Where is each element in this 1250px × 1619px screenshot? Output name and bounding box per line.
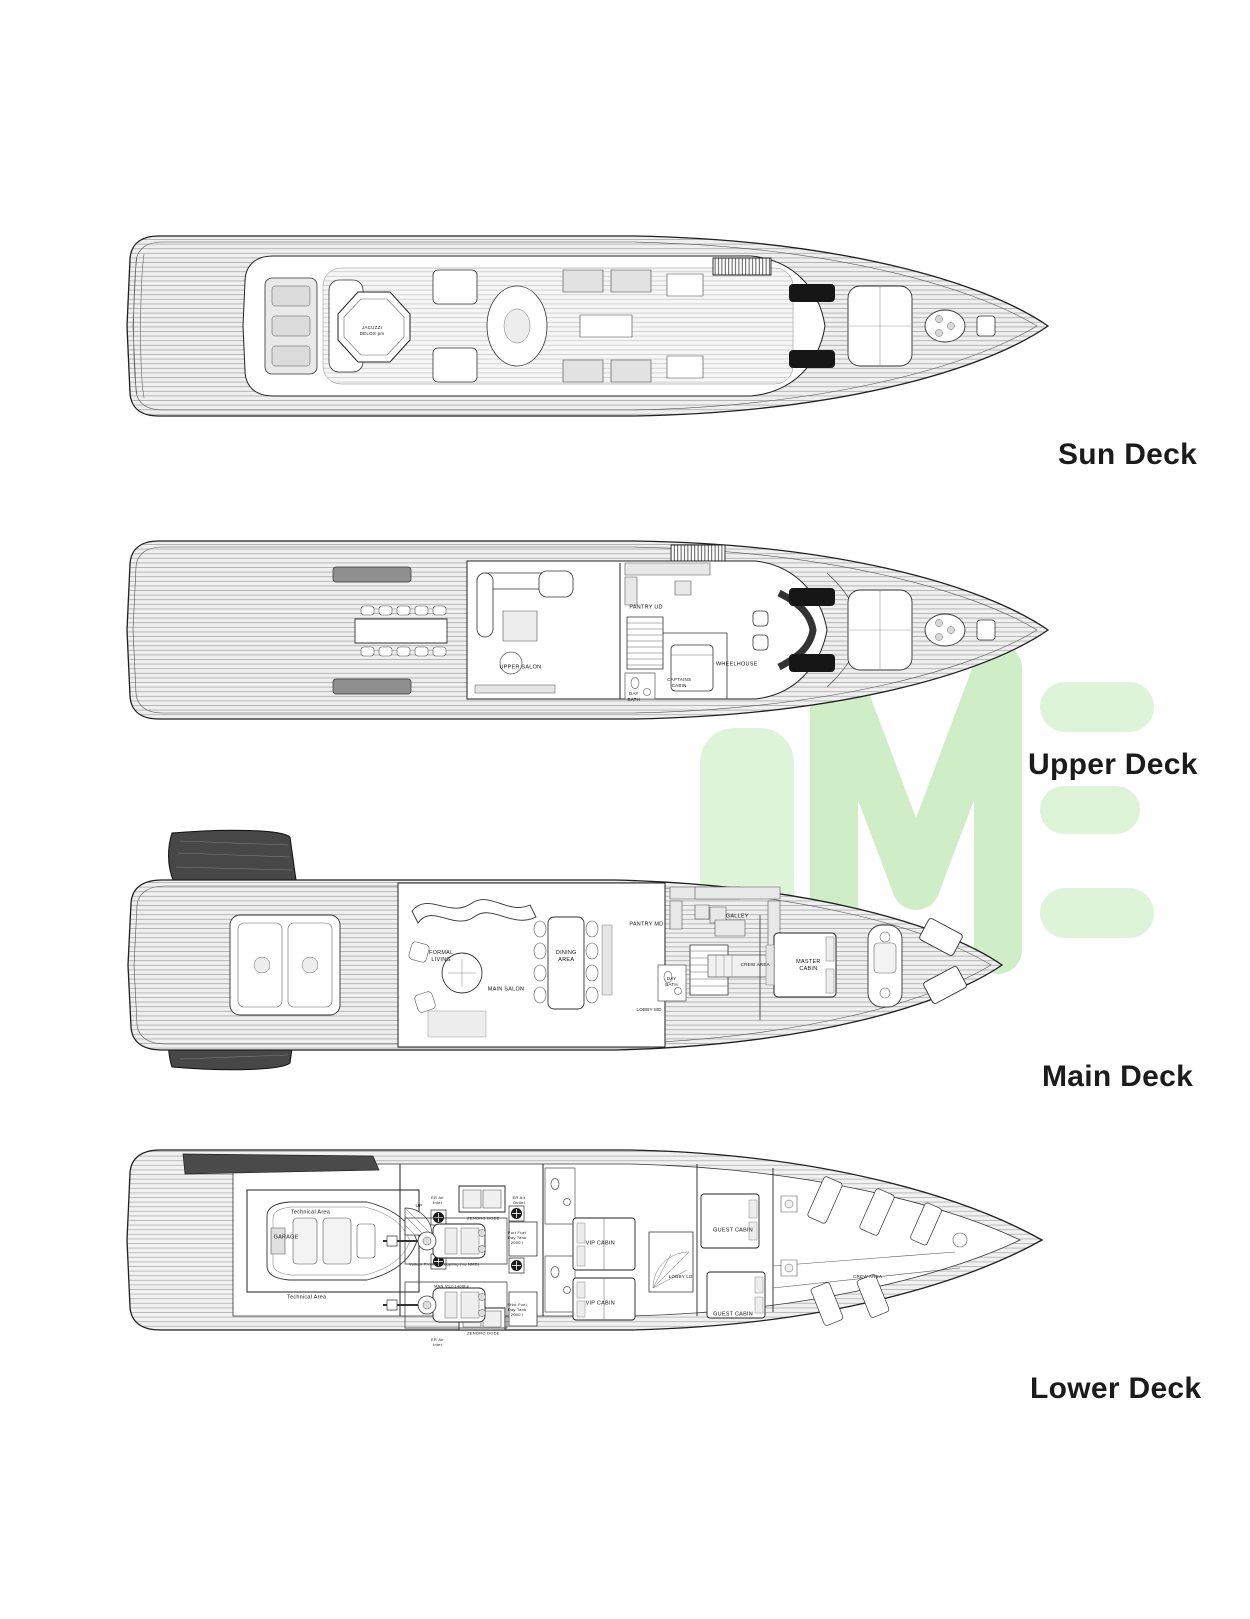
room-label: PANTRY UD xyxy=(629,604,662,611)
room-label: GALLEY xyxy=(726,913,749,920)
page: JACUZZI DELOS pm Sun Deck xyxy=(0,0,1250,1619)
room-label: MASTER CABIN xyxy=(796,959,820,973)
room-label: Vulkan Propflex coupling (no NMD) xyxy=(409,1261,480,1266)
deck-sun: JACUZZI DELOS pm xyxy=(115,228,1060,425)
room-label: GUEST CABIN xyxy=(713,1311,753,1318)
room-label: ER Air Inlet xyxy=(431,1337,444,1347)
room-label: Technical Area xyxy=(287,1294,326,1301)
room-label: WHEELHOUSE xyxy=(716,661,758,668)
room-label: GUEST CABIN xyxy=(713,1227,753,1234)
room-label: UPPER SALON xyxy=(499,664,541,671)
room-label: DAY BATH xyxy=(627,691,640,703)
room-label: MAN V12-1400hp xyxy=(434,1283,469,1288)
deck-lower: Technical AreaGARAGETechnical AreaUPER A… xyxy=(115,1140,1050,1340)
room-label: VIP CABIN xyxy=(586,1300,615,1307)
deck-main: FORMAL LIVINGMAIN SALONDINING AREAPANTRY… xyxy=(110,825,1010,1075)
room-label: GARAGE xyxy=(274,1234,299,1241)
room-label: ZENORO DODE xyxy=(467,1330,500,1335)
deck-title-upper: Upper Deck xyxy=(1028,748,1198,782)
room-label: PANTRY MD xyxy=(629,921,663,928)
room-label: DAY BATH xyxy=(665,976,678,988)
room-label: DINING AREA xyxy=(556,950,577,964)
deck-title-lower: Lower Deck xyxy=(1030,1372,1201,1406)
room-label: CREW AREA xyxy=(853,1274,882,1280)
room-label: ZENORO DODE xyxy=(467,1215,500,1220)
room-label: FORMAL LIVING xyxy=(429,950,453,964)
room-label: CREW AREA xyxy=(741,962,770,968)
room-label: UP xyxy=(415,1203,422,1209)
room-label: LOBBY MD xyxy=(637,1007,662,1013)
room-label: ER Air Inlet xyxy=(431,1195,444,1205)
deck-title-sun: Sun Deck xyxy=(1058,438,1197,472)
room-label: CAPTAINS CABIN xyxy=(667,677,691,689)
room-label: LOBBY LD xyxy=(669,1274,693,1280)
deck-upper: UPPER SALONPANTRY UDDAY BATHCAPTAINS CAB… xyxy=(115,533,1060,728)
deck-title-main: Main Deck xyxy=(1042,1060,1193,1094)
room-label: Stbd Fuel Day Tank 2000 l xyxy=(507,1302,526,1318)
room-label: JACUZZI DELOS pm xyxy=(360,325,385,337)
room-label: ER Air Outlet xyxy=(512,1195,525,1205)
room-label: Port Fuel Day Tank 2000 l xyxy=(508,1230,527,1246)
room-label: MAIN SALON xyxy=(488,986,524,993)
room-label: VIP CABIN xyxy=(586,1240,615,1247)
room-label: Technical Area xyxy=(291,1209,330,1216)
